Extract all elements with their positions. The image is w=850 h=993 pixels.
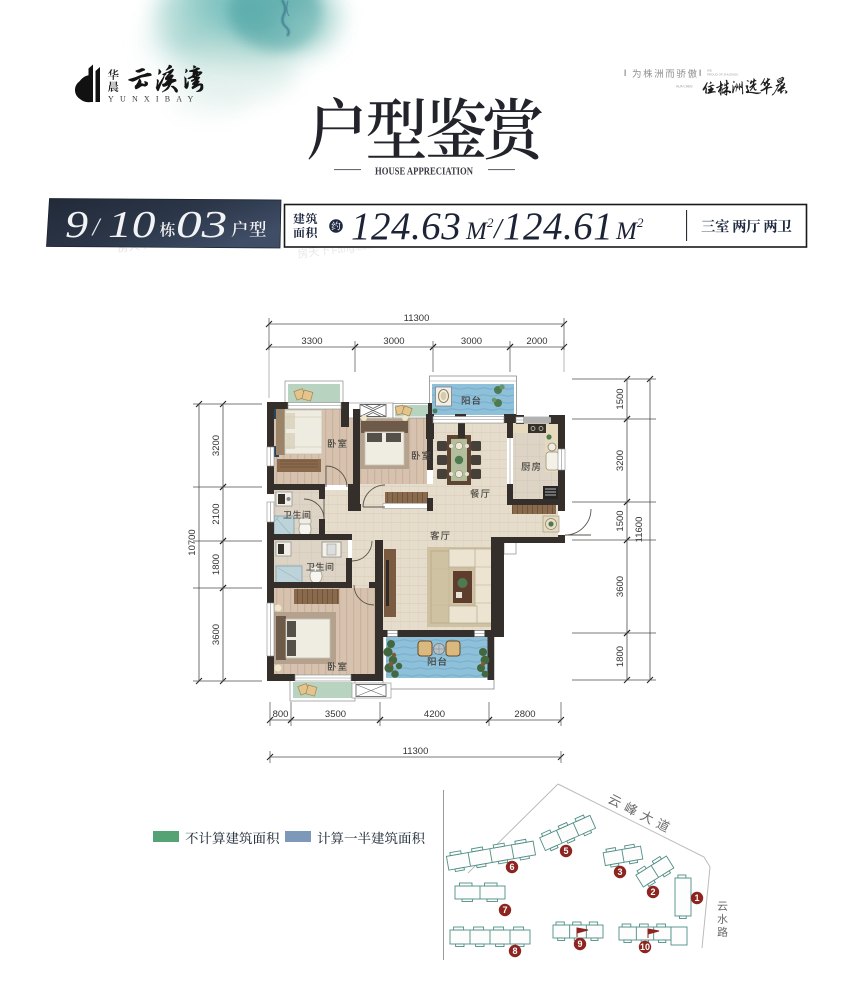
svg-text:4200: 4200 xyxy=(424,709,445,720)
svg-text:9: 9 xyxy=(577,939,582,949)
svg-text:2: 2 xyxy=(487,215,494,230)
svg-text:124.61: 124.61 xyxy=(503,205,613,248)
svg-text:800: 800 xyxy=(273,709,289,720)
svg-text:10: 10 xyxy=(108,204,155,246)
svg-text:2: 2 xyxy=(637,215,644,230)
svg-text:3200: 3200 xyxy=(211,435,222,456)
svg-text:3000: 3000 xyxy=(383,336,404,347)
svg-text:10700: 10700 xyxy=(187,529,198,555)
svg-text:2: 2 xyxy=(650,887,655,897)
svg-text:11300: 11300 xyxy=(404,313,430,324)
svg-text:2000: 2000 xyxy=(526,336,547,347)
svg-text:6: 6 xyxy=(509,862,514,872)
svg-text:3600: 3600 xyxy=(211,624,222,645)
svg-text:8: 8 xyxy=(512,946,517,956)
svg-text:10: 10 xyxy=(640,942,650,952)
svg-text:3500: 3500 xyxy=(325,709,346,720)
svg-text:2100: 2100 xyxy=(211,503,222,524)
svg-text:PROUD OF ZHUZHOU: PROUD OF ZHUZHOU xyxy=(707,73,738,77)
svg-text:9: 9 xyxy=(65,204,88,246)
svg-text:3000: 3000 xyxy=(461,336,482,347)
svg-text:1800: 1800 xyxy=(211,554,222,575)
svg-text:5: 5 xyxy=(563,846,568,856)
svg-text:1800: 1800 xyxy=(615,646,626,667)
svg-text:M: M xyxy=(465,218,488,245)
svg-text:3: 3 xyxy=(617,867,622,877)
svg-text:2800: 2800 xyxy=(514,709,535,720)
svg-text:1500: 1500 xyxy=(615,510,626,531)
svg-text:3300: 3300 xyxy=(301,336,322,347)
svg-text:HOUSE APPRECIATION: HOUSE APPRECIATION xyxy=(375,166,473,178)
svg-text:1500: 1500 xyxy=(615,388,626,409)
svg-text:3200: 3200 xyxy=(615,450,626,471)
svg-text:11300: 11300 xyxy=(403,746,429,757)
svg-text:7: 7 xyxy=(502,905,507,915)
svg-text:03: 03 xyxy=(176,203,227,245)
svg-text:1: 1 xyxy=(694,893,699,903)
svg-text:HUA CHEN: HUA CHEN xyxy=(676,85,693,89)
svg-text:YUNXIBAY: YUNXIBAY xyxy=(108,95,200,104)
svg-text:11600: 11600 xyxy=(634,517,645,543)
svg-text:M: M xyxy=(615,218,638,245)
svg-text:124.63: 124.63 xyxy=(351,205,461,248)
svg-text:3600: 3600 xyxy=(615,576,626,597)
